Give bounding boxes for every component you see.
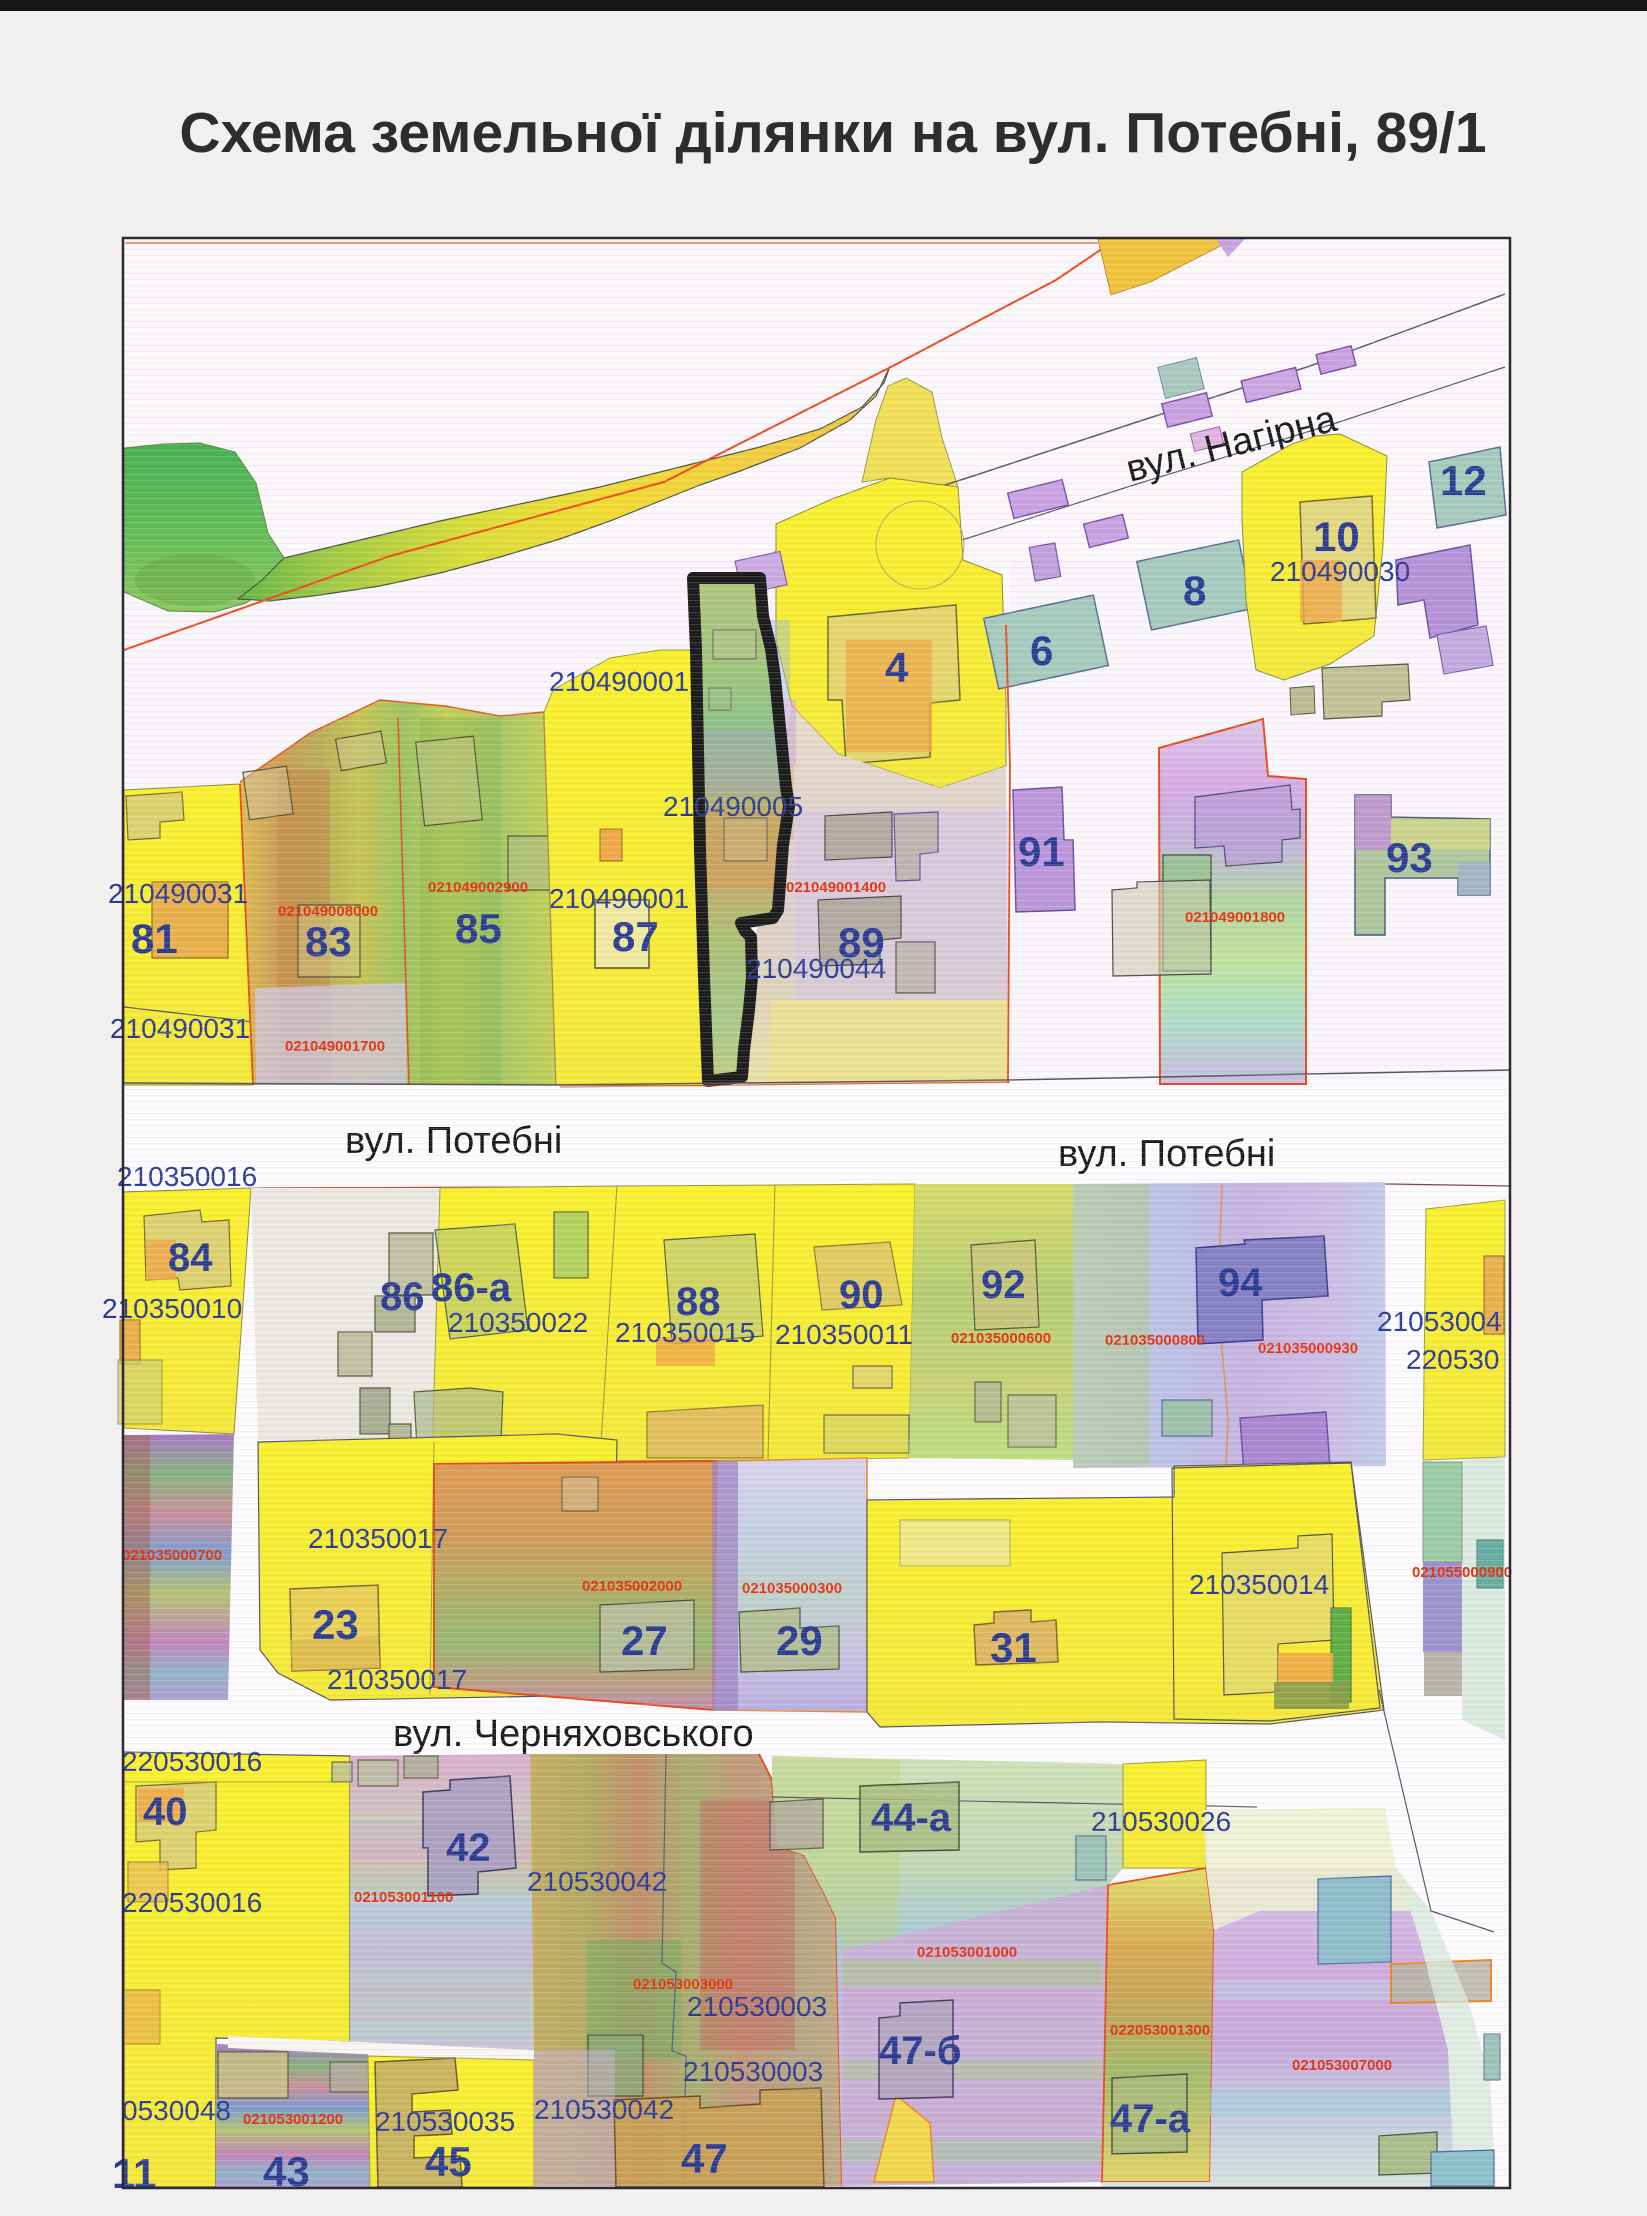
svg-text:Схема земельної ділянки на вул: Схема земельної ділянки на вул. Потебні,… bbox=[179, 101, 1486, 165]
